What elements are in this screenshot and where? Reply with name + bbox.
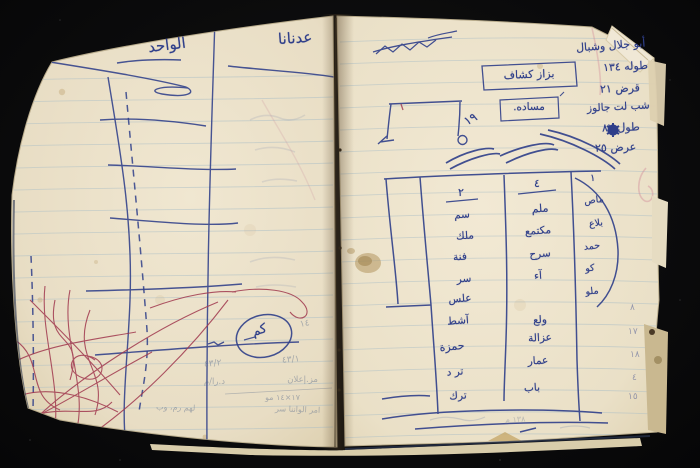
table-entry: حمزة [439, 340, 465, 353]
table-entry: علس [448, 293, 472, 305]
pencil-note: د.را/م [204, 378, 225, 387]
spine-crease [335, 18, 336, 447]
right-page [337, 16, 659, 446]
boxed-label: بزاز كشاف [503, 68, 554, 81]
ink-note: طول ٨٢ [602, 121, 640, 133]
pencil-note: مز.إعلان [287, 376, 318, 385]
table-col-header: ٤ [534, 178, 540, 189]
ink-note: طوله ١٣٤ [603, 60, 648, 73]
oval-side-mark: ١٤ [299, 319, 310, 330]
pencil-note: ٤٣/٢ [204, 359, 222, 369]
table-entry: سر [456, 274, 471, 285]
table-entry: سم [454, 209, 470, 221]
margin-number: ١٨ [630, 351, 640, 360]
table-entry: عمار [527, 355, 548, 367]
table-entry: تر د [446, 366, 463, 378]
table-entry: باب [524, 383, 541, 394]
table-col-header: ١ [590, 174, 595, 184]
table-entry: فنة [453, 252, 468, 263]
boxed-label: مساده. [513, 102, 545, 113]
table-entry: آء [534, 271, 543, 282]
margin-number: ١٧ [628, 328, 638, 337]
pencil-note: ١٧×١٤ مو [265, 394, 300, 402]
ink-note: عرض ٢٥ [595, 141, 637, 153]
table-entry: ولع [533, 315, 547, 326]
notebook-graphics [0, 0, 700, 468]
pencil-note: امر الواننا سر [275, 405, 320, 415]
table-entry: بلاع [589, 218, 604, 229]
table-entry: عزالة [528, 332, 552, 344]
table-entry: ملم [531, 202, 549, 214]
table-entry: ملو [585, 286, 599, 297]
ink-note: قرض ٢١ [600, 82, 640, 94]
notebook-photo: الواحد عدنانا كم ١٤ ٤٣/٢ ٤٣/١ د.را/م مز.… [0, 0, 700, 468]
bottom-note: ١٣٨ م [505, 415, 526, 424]
table-col-header: ٢ [458, 187, 464, 198]
table-entry: ماص [584, 195, 604, 206]
table-entry: ترك [449, 390, 467, 402]
left-header-al-wahid: الواحد [147, 36, 186, 55]
table-entry: ملك [456, 230, 475, 242]
table-entry: مكتمع [525, 225, 552, 237]
table-entry: كو [585, 264, 595, 274]
margin-number: ١٥ [628, 393, 638, 402]
left-header-adnana: عدنانا [277, 30, 312, 47]
spine-shadow [322, 14, 354, 450]
table-entry: آشط [447, 315, 469, 327]
margin-number: ٤ [632, 374, 637, 383]
margin-number: ٨ [630, 304, 635, 313]
table-entry: حمد [583, 241, 600, 252]
pencil-note: ٤٣/١ [282, 355, 300, 365]
left-page [12, 16, 340, 455]
pencil-note: لهم رم، وب [156, 403, 196, 412]
table-entry: سرح [529, 248, 551, 260]
